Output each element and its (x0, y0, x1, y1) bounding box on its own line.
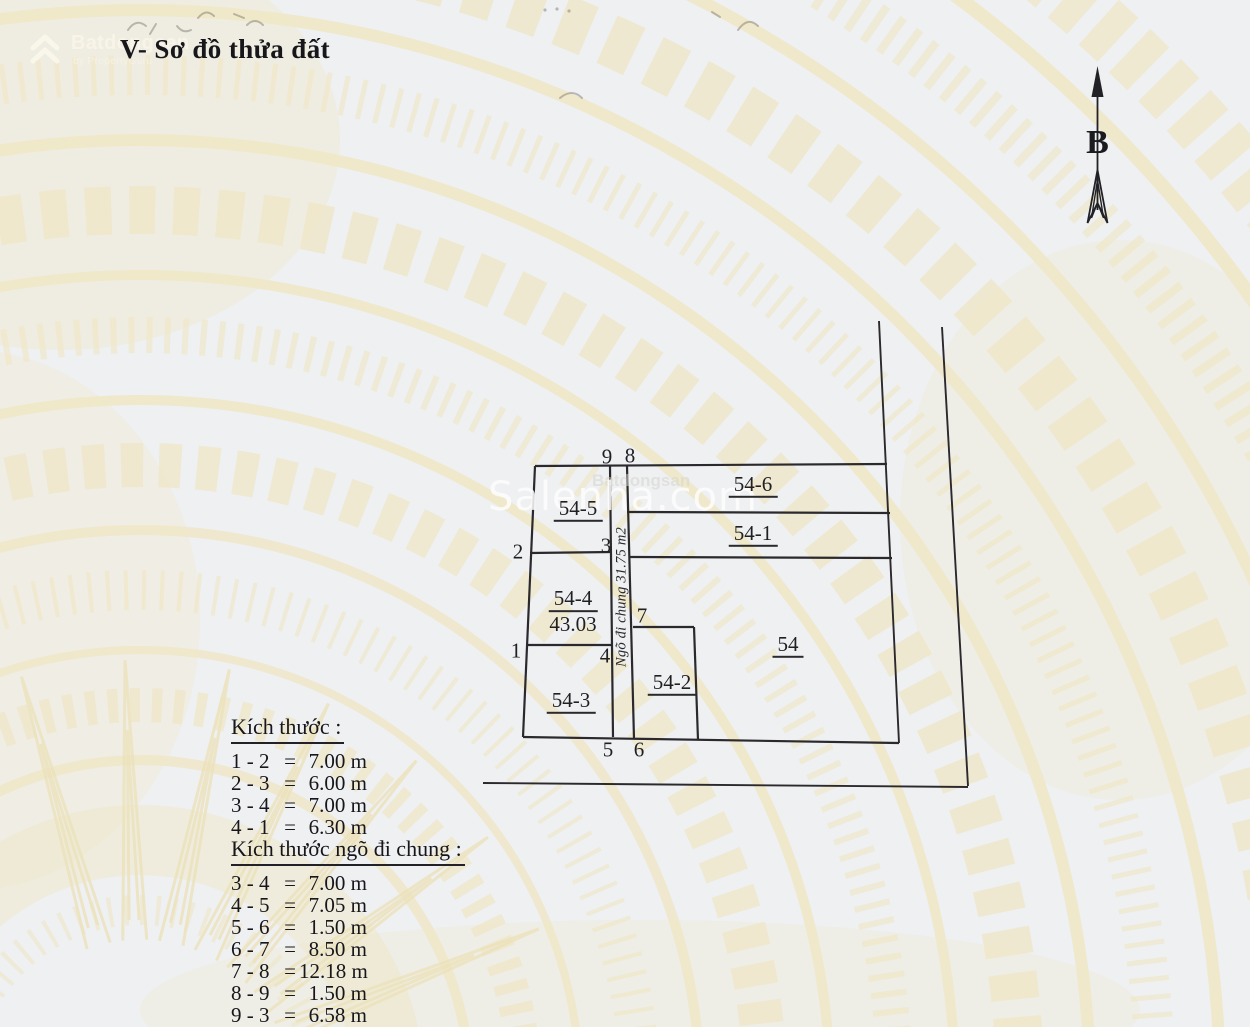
equals-sign: = (281, 772, 299, 794)
alley-label: Ngõ đi chung 31.75 m2 (614, 527, 631, 667)
equals-sign: = (281, 894, 299, 916)
dimension-label: 9 - 3 (231, 1004, 281, 1026)
dimension-value: 8.50 m (299, 938, 367, 960)
dimension-label: 3 - 4 (231, 872, 281, 894)
parcel-label-54-1: 54-1 (729, 521, 778, 547)
parcel-id: 54-6 (729, 474, 778, 498)
alley-dimensions-list: Kích thước ngõ đi chung : 3 - 4 = 7.00 m… (231, 836, 465, 1026)
dimension-value: 7.05 m (299, 894, 367, 916)
equals-sign: = (281, 916, 299, 938)
point-label-5: 5 (603, 738, 614, 763)
point-label-8: 8 (625, 444, 636, 469)
equals-sign: = (281, 750, 299, 772)
point-label-3: 3 (601, 534, 612, 559)
dimension-value: 7.00 m (299, 872, 367, 894)
dimension-row: 6 - 7 = 8.50 m (231, 938, 465, 960)
equals-sign: = (281, 960, 299, 982)
dimension-value: 7.00 m (299, 750, 367, 772)
dimension-label: 7 - 8 (231, 960, 281, 982)
dimension-row: 1 - 2 = 7.00 m (231, 750, 367, 772)
parcel-area: 43.03 (549, 613, 598, 636)
equals-sign: = (281, 982, 299, 1004)
parcel-label-54-4: 54-4 43.03 (549, 586, 598, 636)
dimension-row: 4 - 1 = 6.30 m (231, 816, 367, 838)
dimension-label: 5 - 6 (231, 916, 281, 938)
dimension-value: 6.58 m (299, 1004, 367, 1026)
dimension-label: 4 - 5 (231, 894, 281, 916)
dimensions-list: Kích thước : 1 - 2 = 7.00 m 2 - 3 = 6.00… (231, 714, 367, 838)
parcel-id: 54-5 (554, 498, 603, 522)
dimension-row: 5 - 6 = 1.50 m (231, 916, 465, 938)
alley-dimensions-heading: Kích thước ngõ đi chung : (231, 836, 465, 866)
dimension-label: 1 - 2 (231, 750, 281, 772)
dimension-row: 8 - 9 = 1.50 m (231, 982, 465, 1004)
dimension-label: 4 - 1 (231, 816, 281, 838)
parcel-label-54-3: 54-3 (547, 688, 596, 714)
dimension-row: 7 - 8 = 12.18 m (231, 960, 465, 982)
equals-sign: = (281, 794, 299, 816)
parcel-id: 54-2 (648, 672, 697, 696)
dimension-row: 2 - 3 = 6.00 m (231, 772, 367, 794)
point-label-6: 6 (634, 738, 645, 763)
dimension-row: 3 - 4 = 7.00 m (231, 872, 465, 894)
point-label-4: 4 (600, 644, 611, 669)
dimension-value: 1.50 m (299, 982, 367, 1004)
parcel-label-54-2: 54-2 (648, 670, 697, 696)
scanned-land-certificate-page: { "header": { "title": "V- Sơ đồ thửa đấ… (0, 0, 1250, 1027)
dimension-row: 3 - 4 = 7.00 m (231, 794, 367, 816)
dimensions-heading: Kích thước : (231, 714, 344, 744)
dimension-label: 2 - 3 (231, 772, 281, 794)
dimension-value: 6.00 m (299, 772, 367, 794)
parcel-label-54: 54 (773, 632, 804, 658)
point-label-7: 7 (637, 604, 648, 629)
dimension-label: 6 - 7 (231, 938, 281, 960)
dimension-value: 7.00 m (299, 794, 367, 816)
point-label-9: 9 (602, 445, 613, 470)
parcel-label-54-6: 54-6 (729, 472, 778, 498)
equals-sign: = (281, 1004, 299, 1026)
point-label-2: 2 (513, 540, 524, 565)
equals-sign: = (281, 816, 299, 838)
dimension-row: 9 - 3 = 6.58 m (231, 1004, 465, 1026)
dimension-label: 3 - 4 (231, 794, 281, 816)
dimension-value: 6.30 m (299, 816, 367, 838)
parcel-id: 54-4 (549, 588, 598, 612)
dimension-value: 12.18 m (299, 960, 367, 982)
parcel-id: 54-3 (547, 690, 596, 714)
dimension-label: 8 - 9 (231, 982, 281, 1004)
dimension-row: 4 - 5 = 7.05 m (231, 894, 465, 916)
site-watermark: Salenha.com (488, 477, 758, 517)
parcel-id: 54-1 (729, 523, 778, 547)
dimension-value: 1.50 m (299, 916, 367, 938)
parcel-id: 54 (773, 634, 804, 658)
equals-sign: = (281, 938, 299, 960)
equals-sign: = (281, 872, 299, 894)
parcel-label-54-5: 54-5 (554, 496, 603, 522)
point-label-1: 1 (511, 639, 522, 664)
